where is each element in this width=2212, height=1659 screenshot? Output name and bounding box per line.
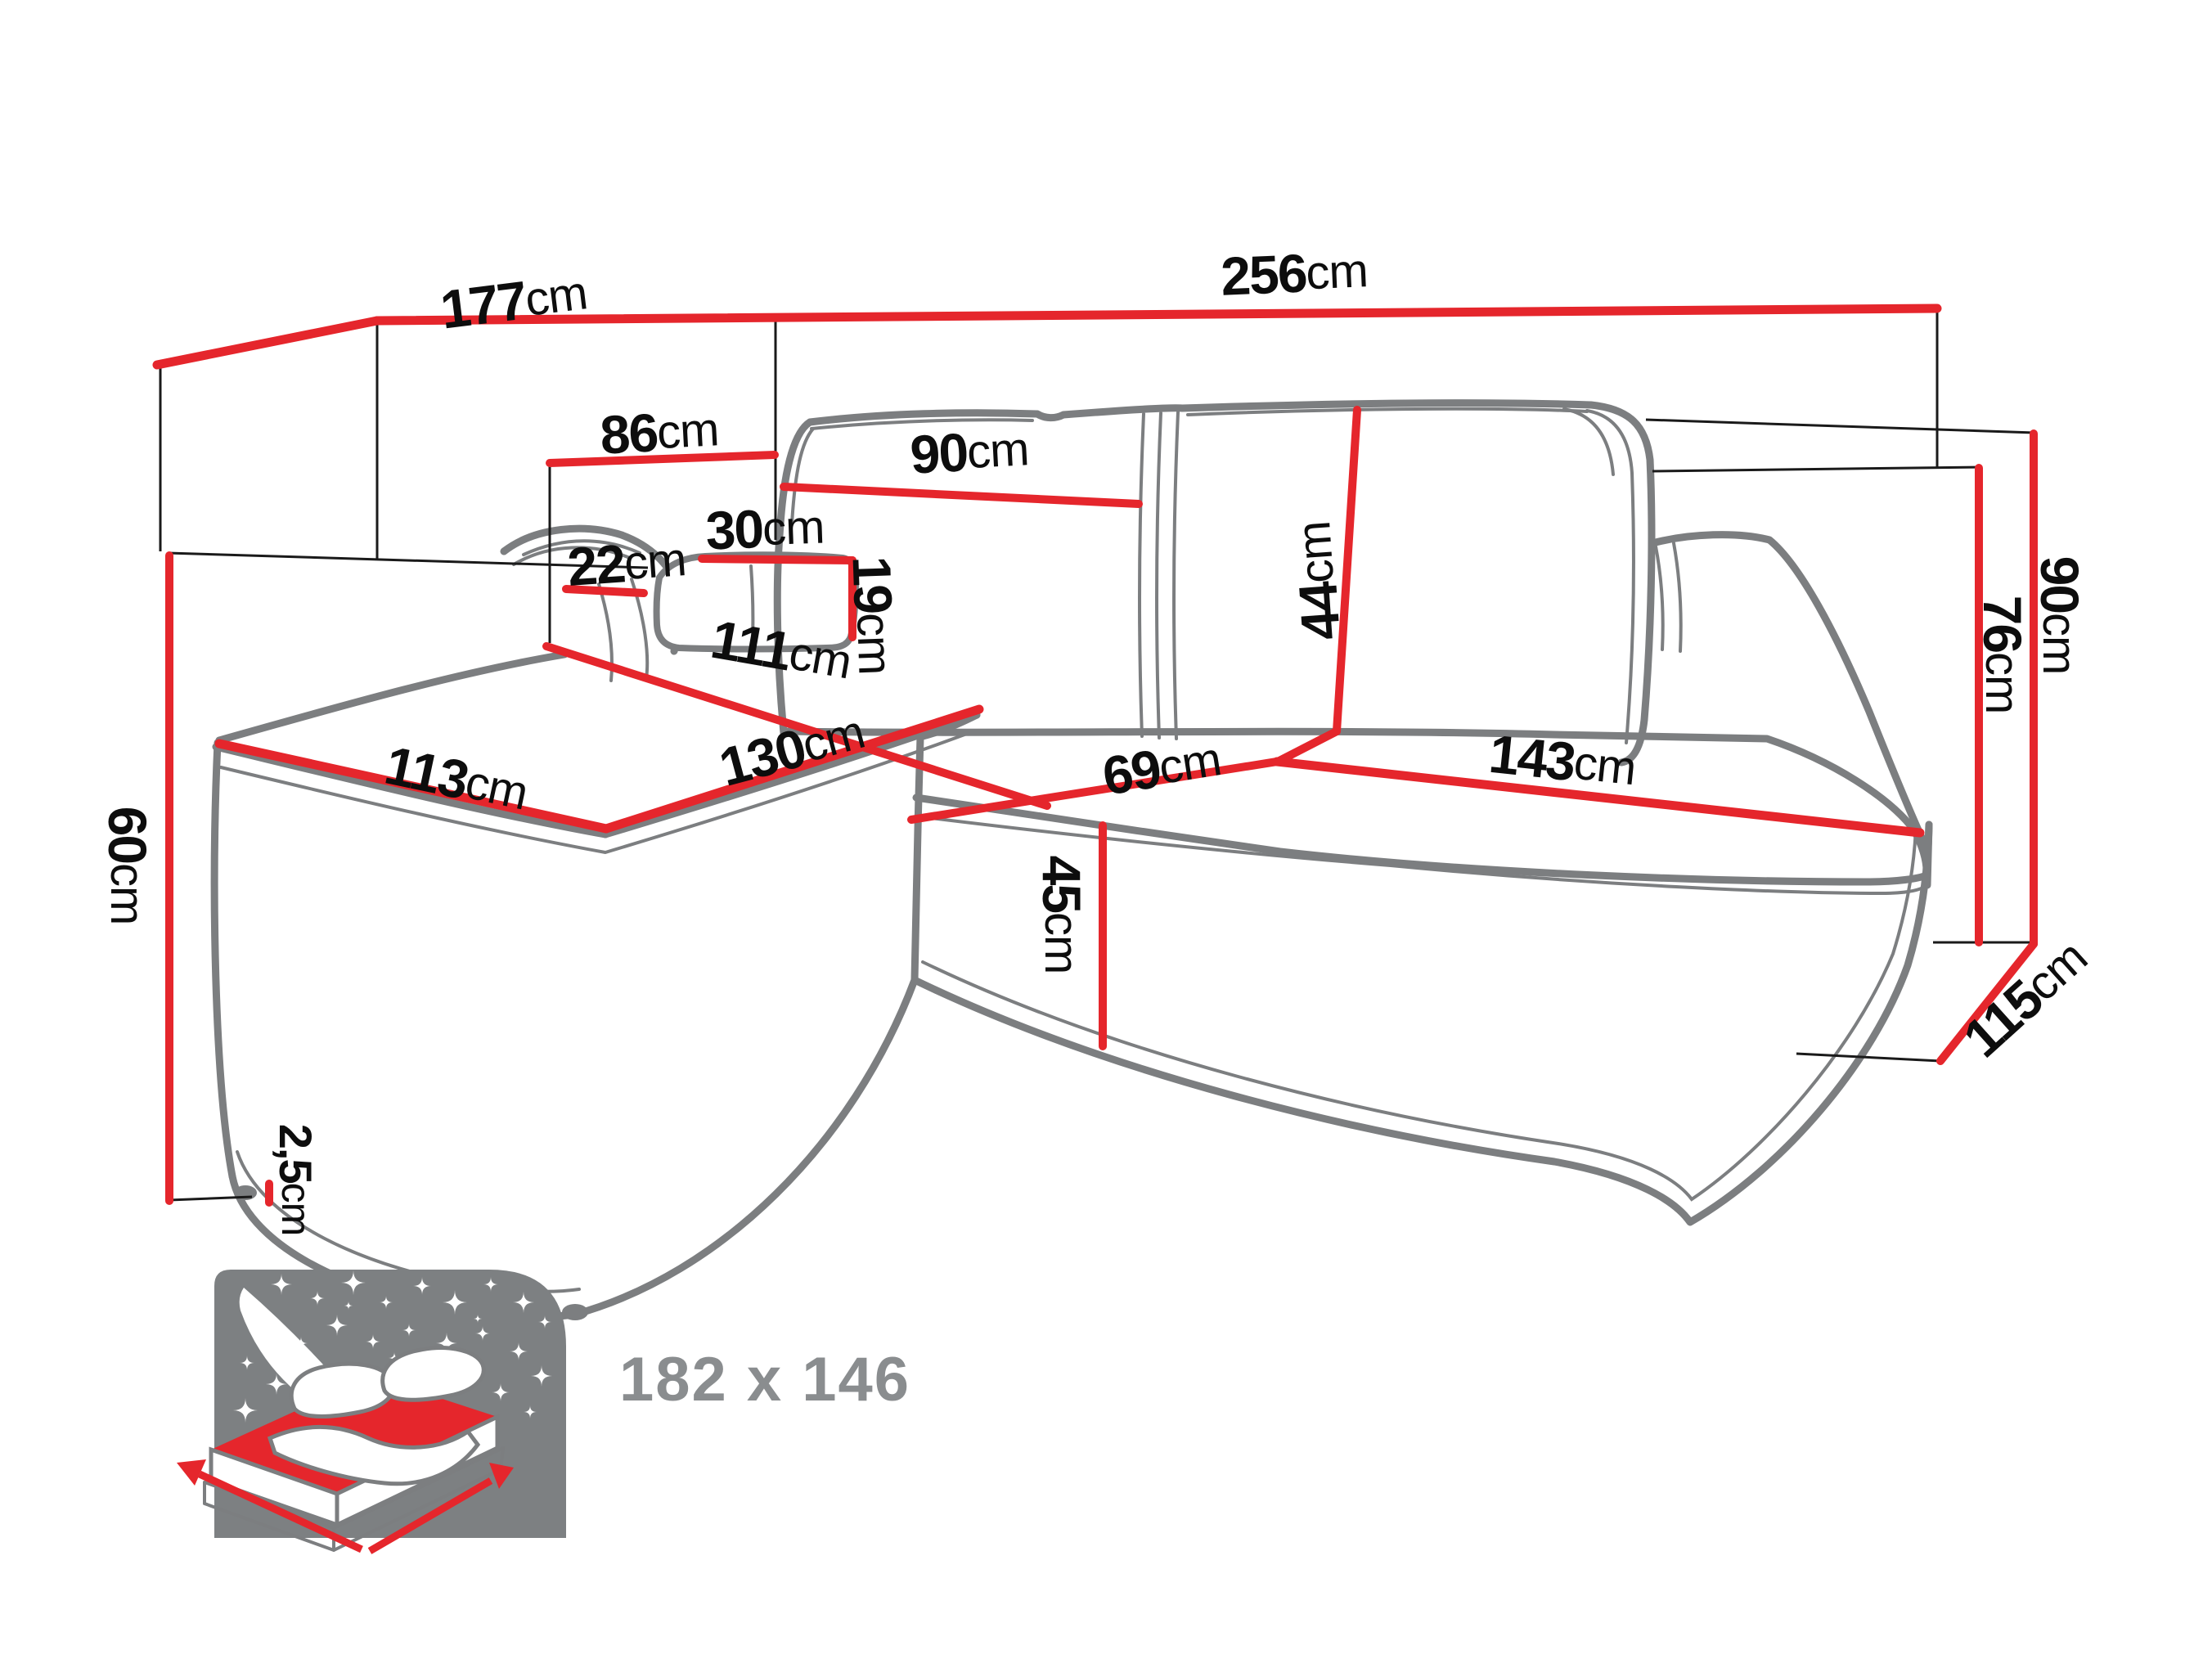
right-arm-front-line-1 <box>1656 546 1663 650</box>
backrest-pleat-2 <box>1157 413 1161 738</box>
backrest <box>777 403 1652 762</box>
tick-76-top <box>1652 467 1980 471</box>
dim-label-90-height: 90cm <box>2030 556 2090 675</box>
backrest-pleat-3 <box>1174 412 1178 739</box>
dim-label-44: 44cm <box>1283 519 1351 642</box>
tick-90-top <box>1646 420 2034 433</box>
dim-label-69: 69cm <box>1099 728 1225 807</box>
dim-line-177 <box>157 321 377 365</box>
dimension-labels: 177cm 256cm 86cm 90cm 30cm 22cm 19cm 44c… <box>97 240 2099 1235</box>
dim-label-177: 177cm <box>437 262 590 339</box>
dim-label-76: 76cm <box>1972 596 2033 714</box>
chaise-front-right-edge <box>574 980 915 1315</box>
sleeping-size-text: 182 x 146 <box>619 1345 910 1414</box>
dim-label-45: 45cm <box>1032 856 1092 974</box>
dim-line-256 <box>377 308 1937 321</box>
dim-label-86: 86cm <box>599 398 720 465</box>
dim-label-2-5: 2,5cm <box>271 1124 322 1236</box>
dim-label-90-backrest: 90cm <box>909 418 1030 484</box>
dim-label-60: 60cm <box>97 807 158 925</box>
dim-line-90-backrest <box>784 487 1139 504</box>
dim-label-30: 30cm <box>704 496 825 560</box>
corner-seat-front-edge <box>915 737 920 980</box>
tick-115-bottom <box>1796 1054 1940 1061</box>
sleeping-function-icon: 182 x 146 <box>177 1270 910 1551</box>
dim-line-69 <box>911 762 1277 820</box>
right-arm-front-line-2 <box>1674 543 1681 651</box>
backrest-outline <box>777 403 1652 762</box>
chaise-foot-front <box>562 1304 588 1320</box>
sofa-dimension-diagram: 177cm 256cm 86cm 90cm 30cm 22cm 19cm 44c… <box>0 0 2212 1659</box>
diagram-page: 177cm 256cm 86cm 90cm 30cm 22cm 19cm 44c… <box>0 0 2212 1659</box>
dim-label-256: 256cm <box>1220 240 1369 307</box>
backrest-pleat-1 <box>1140 414 1144 736</box>
chaise-seat-back-edge <box>219 654 564 740</box>
chaise-left-side <box>214 743 232 1176</box>
right-seat <box>785 731 1929 1222</box>
dim-label-130: 130cm <box>713 701 870 798</box>
